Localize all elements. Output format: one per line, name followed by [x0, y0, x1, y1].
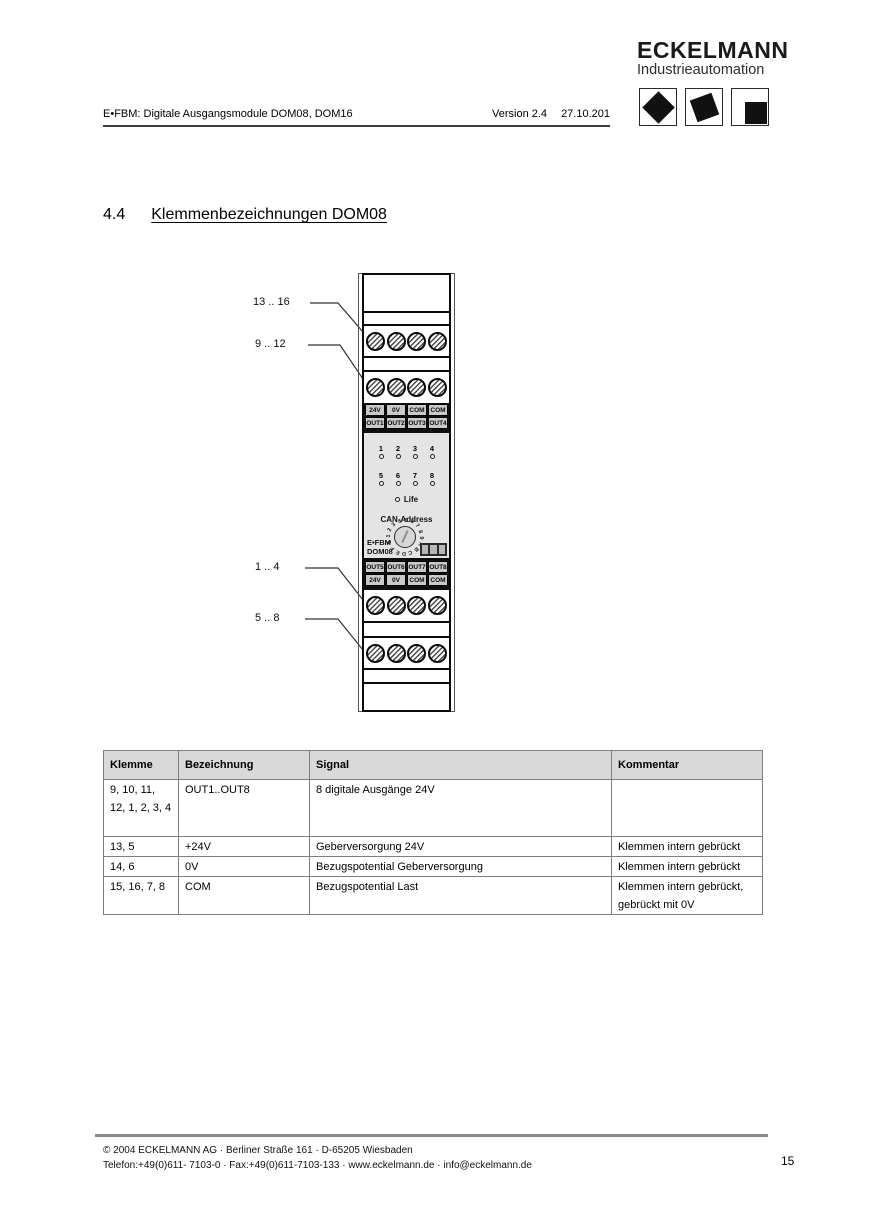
table-cell: 9, 10, 11, 12, 1, 2, 3, 4: [104, 780, 179, 837]
terminal-label: 0V: [386, 574, 406, 586]
dial-char: 5: [404, 518, 407, 524]
module-front-panel: 1 2 3 4 5 6 7 8 Life CAN-Address: [364, 433, 449, 560]
terminal-label: COM: [428, 574, 448, 586]
table-cell: Klemmen intern gebrückt: [612, 857, 763, 877]
terminal-label: OUT1: [365, 417, 385, 429]
screw-terminal-icon: [428, 378, 447, 397]
col-header-bezeichnung: Bezeichnung: [179, 751, 310, 780]
life-label: Life: [404, 495, 418, 504]
terminal-label: OUT4: [428, 417, 448, 429]
screw-terminal-icon: [428, 644, 447, 663]
dial-char: D: [402, 550, 406, 556]
led-indicator-row-1: 1 2 3 4: [364, 445, 449, 459]
bottom-terminal-labels: OUT5 OUT6 OUT7 OUT8 24V 0V COM COM: [364, 560, 449, 590]
screw-terminal-icon: [387, 378, 406, 397]
table-cell: 15, 16, 7, 8: [104, 877, 179, 915]
terminal-table: Klemme Bezeichnung Signal Kommentar 9, 1…: [103, 750, 763, 915]
dial-char: C: [408, 549, 414, 556]
table-cell: OUT1..OUT8: [179, 780, 310, 837]
logo-brand-text: ECKELMANN: [637, 38, 767, 62]
dial-char: 9: [418, 536, 424, 539]
life-led-icon: [395, 497, 400, 502]
rotary-knob-icon: [394, 526, 416, 548]
table-header-row: Klemme Bezeichnung Signal Kommentar: [104, 751, 763, 780]
dom08-module-diagram: 24V 0V COM COM OUT1 OUT2 OUT3 OUT4 1 2 3: [358, 273, 455, 712]
logo-subtitle-text: Industrieautomation: [637, 62, 767, 79]
led-number: 2: [396, 445, 400, 453]
footer: © 2004 ECKELMANN AG · Berliner Straße 16…: [103, 1143, 532, 1173]
dial-char: 8: [417, 529, 424, 534]
screw-terminal-icon: [387, 644, 406, 663]
footer-rule: [95, 1134, 768, 1137]
dial-char: E: [395, 548, 401, 555]
led-number: 5: [379, 472, 383, 480]
module-strip-2: [364, 358, 449, 372]
section-number: 4.4: [103, 206, 125, 224]
col-header-klemme: Klemme: [104, 751, 179, 780]
col-header-kommentar: Kommentar: [612, 751, 763, 780]
table-row: 13, 5 +24V Geberversorgung 24V Klemmen i…: [104, 837, 763, 857]
led-number: 8: [430, 472, 434, 480]
screw-terminal-icon: [387, 332, 406, 351]
table-cell: 0V: [179, 857, 310, 877]
terminal-label: 0V: [386, 404, 406, 416]
company-logo: ECKELMANN Industrieautomation: [637, 38, 767, 79]
terminal-label: OUT3: [407, 417, 427, 429]
led-icon: [430, 454, 435, 459]
logo-square-diamond-icon: [639, 88, 677, 126]
screw-terminal-icon: [428, 332, 447, 351]
screw-terminal-icon: [366, 644, 385, 663]
table-cell: Bezugspotential Last: [310, 877, 612, 915]
service-connector-icon: [420, 543, 447, 556]
logo-square-corner-icon: [731, 88, 769, 126]
can-address-rotary-dial: 0123456789ABCDEF: [375, 507, 435, 567]
led-icon: [379, 481, 384, 486]
led-icon: [379, 454, 384, 459]
screw-terminal-icon: [407, 596, 426, 615]
terminal-label: OUT5: [365, 561, 385, 573]
callout-label-5-8: 5 .. 8: [255, 612, 279, 624]
table-row: 9, 10, 11, 12, 1, 2, 3, 4 OUT1..OUT8 8 d…: [104, 780, 763, 837]
logo-squares: [639, 88, 769, 126]
footer-line-2: Telefon:+49(0)611- 7103-0 · Fax:+49(0)61…: [103, 1158, 532, 1173]
table-cell: [612, 780, 763, 837]
terminal-label: 24V: [365, 574, 385, 586]
screw-terminal-icon: [366, 332, 385, 351]
screw-terminal-icon: [407, 644, 426, 663]
terminal-label: OUT6: [386, 561, 406, 573]
terminal-screw-row-5-8: [364, 638, 449, 668]
module-top-box: [364, 275, 449, 313]
dial-char: 3: [391, 522, 397, 528]
led-indicator-row-2: 5 6 7 8: [364, 472, 449, 486]
terminal-label: COM: [407, 574, 427, 586]
model-line2: DOM08: [367, 548, 393, 557]
logo-square-tilted-icon: [685, 88, 723, 126]
footer-line-1: © 2004 ECKELMANN AG · Berliner Straße 16…: [103, 1143, 532, 1158]
terminal-label: OUT8: [428, 561, 448, 573]
dial-char: 2: [387, 528, 394, 533]
table-cell: 13, 5: [104, 837, 179, 857]
callout-label-1-4: 1 .. 4: [255, 561, 279, 573]
terminal-label: OUT2: [386, 417, 406, 429]
dial-char: 4: [397, 519, 402, 526]
life-led-row: Life: [364, 495, 449, 504]
led-icon: [396, 454, 401, 459]
screw-terminal-icon: [428, 596, 447, 615]
table-cell: 14, 6: [104, 857, 179, 877]
led-number: 3: [413, 445, 417, 453]
terminal-label: OUT7: [407, 561, 427, 573]
running-header: E•FBM: Digitale Ausgangsmodule DOM08, DO…: [103, 108, 610, 120]
module-strip-3: [364, 621, 449, 638]
terminal-screw-row-13-16: [364, 326, 449, 358]
screw-terminal-icon: [407, 332, 426, 351]
table-cell: COM: [179, 877, 310, 915]
terminal-label: 24V: [365, 404, 385, 416]
dial-char: B: [412, 545, 419, 552]
screw-terminal-icon: [366, 596, 385, 615]
col-header-signal: Signal: [310, 751, 612, 780]
table-cell: Klemmen intern gebrückt: [612, 837, 763, 857]
document-page: ECKELMANN Industrieautomation E•FBM: Dig…: [0, 0, 870, 1230]
dial-char: 7: [414, 523, 420, 529]
table-cell: Bezugspotential Geberversorgung: [310, 857, 612, 877]
dial-char: 6: [409, 519, 414, 526]
section-title: Klemmenbezeichnungen DOM08: [151, 206, 387, 224]
led-number: 7: [413, 472, 417, 480]
led-icon: [430, 481, 435, 486]
table-row: 14, 6 0V Bezugspotential Geberversorgung…: [104, 857, 763, 877]
led-icon: [413, 454, 418, 459]
callout-label-13-16: 13 .. 16: [253, 296, 290, 308]
table-cell: Klemmen intern gebrückt, gebrückt mit 0V: [612, 877, 763, 915]
module-body: 24V 0V COM COM OUT1 OUT2 OUT3 OUT4 1 2 3: [362, 273, 451, 712]
terminal-screw-row-9-12: [364, 372, 449, 403]
terminal-label: COM: [428, 404, 448, 416]
led-icon: [413, 481, 418, 486]
terminal-screw-row-1-4: [364, 590, 449, 621]
top-terminal-labels: 24V 0V COM COM OUT1 OUT2 OUT3 OUT4: [364, 403, 449, 433]
table-cell: Geberversorgung 24V: [310, 837, 612, 857]
table-cell: 8 digitale Ausgänge 24V: [310, 780, 612, 837]
callout-label-9-12: 9 .. 12: [255, 338, 286, 350]
led-icon: [396, 481, 401, 486]
section-heading: 4.4 Klemmenbezeichnungen DOM08: [103, 206, 387, 224]
header-rule: [103, 125, 610, 127]
doc-version: Version 2.4: [492, 108, 547, 120]
led-number: 1: [379, 445, 383, 453]
screw-terminal-icon: [407, 378, 426, 397]
module-bottom-box: [364, 684, 449, 710]
page-number: 15: [781, 1154, 794, 1168]
doc-title: E•FBM: Digitale Ausgangsmodule DOM08, DO…: [103, 108, 353, 120]
module-strip-4: [364, 668, 449, 684]
led-number: 6: [396, 472, 400, 480]
module-strip-1: [364, 313, 449, 326]
table-row: 15, 16, 7, 8 COM Bezugspotential Last Kl…: [104, 877, 763, 915]
doc-date: 27.10.201: [561, 108, 610, 120]
screw-terminal-icon: [387, 596, 406, 615]
screw-terminal-icon: [366, 378, 385, 397]
module-model-text: E•FBM DOM08: [367, 539, 393, 556]
led-number: 4: [430, 445, 434, 453]
terminal-label: COM: [407, 404, 427, 416]
table-cell: +24V: [179, 837, 310, 857]
